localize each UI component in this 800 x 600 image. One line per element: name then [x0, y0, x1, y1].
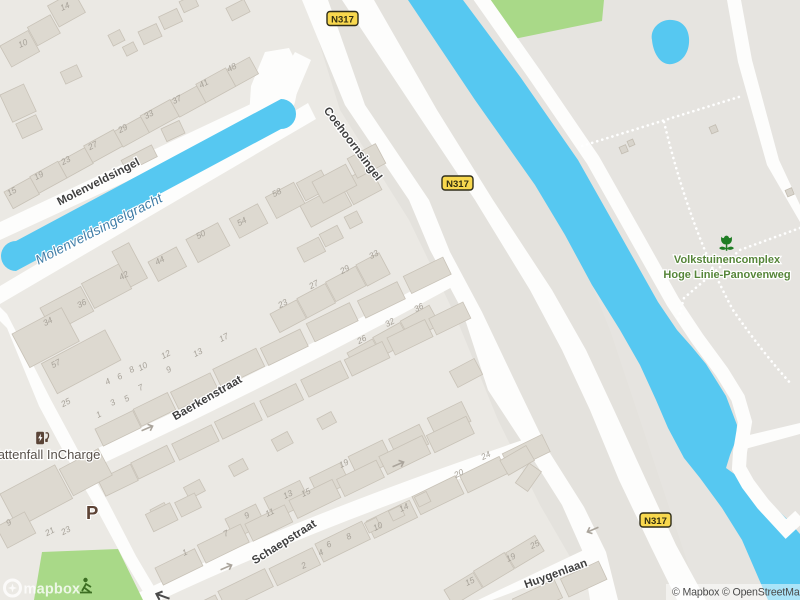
svg-text:Vattenfall InCharge: Vattenfall InCharge — [0, 447, 100, 462]
svg-text:Hoge Linie-Panovenweg: Hoge Linie-Panovenweg — [663, 269, 790, 281]
svg-text:N317: N317 — [644, 516, 667, 527]
svg-text:N317: N317 — [446, 179, 469, 190]
svg-text:P: P — [86, 502, 98, 523]
svg-text:Volkstuinencomplex: Volkstuinencomplex — [674, 254, 781, 266]
svg-text:mapbox: mapbox — [24, 582, 81, 598]
svg-text:N317: N317 — [331, 15, 354, 26]
svg-text:© Mapbox © OpenStreetMap: © Mapbox © OpenStreetMap — [672, 587, 800, 599]
